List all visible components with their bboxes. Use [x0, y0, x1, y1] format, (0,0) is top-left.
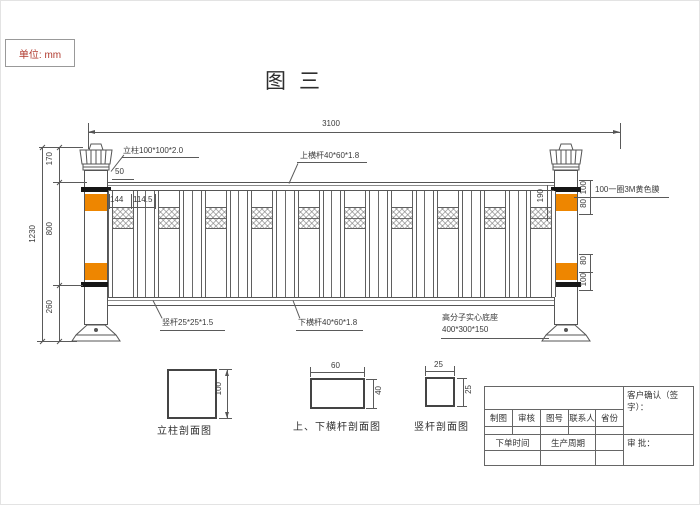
unit-label: 单位: mm: [19, 46, 61, 61]
titleblock-empty-cell: [513, 427, 541, 435]
dim-line: [426, 371, 454, 372]
fence-ornament: [158, 207, 180, 229]
section-rail-dim-side: 40: [375, 386, 383, 395]
approval-cell: 审 批：: [624, 435, 694, 466]
figure-title: 图三: [265, 65, 333, 95]
dim-144: 144: [110, 196, 123, 205]
dim-line: [227, 370, 228, 418]
fence-bar: [424, 191, 425, 297]
fence-ornament: [344, 207, 366, 229]
dim-ext-line: [620, 123, 621, 149]
fence-ornament: [205, 207, 227, 229]
dim-ext-line: [579, 290, 593, 291]
section-vbar-dim-side: 25: [465, 385, 473, 394]
titleblock-empty-cell: [596, 427, 624, 435]
bottom-rail-label: 下横杆40*60*1.8: [298, 319, 357, 328]
dim-arrow: [613, 130, 620, 134]
dim-ext-line: [366, 408, 377, 409]
dim-line: [547, 185, 548, 221]
section-vbar-square: [425, 377, 455, 407]
leader-line: [160, 330, 225, 331]
fence-bar: [471, 191, 472, 297]
fence-bar: [378, 191, 379, 297]
dim-bot-band-80: 80: [580, 256, 588, 265]
dim-ext-line: [219, 418, 232, 419]
dim-ext-line: [131, 194, 132, 209]
fence-ornament: [437, 207, 459, 229]
post-band-black: [81, 282, 111, 287]
dim-line: [88, 132, 620, 133]
section-vbar-label: 竖杆剖面图: [414, 418, 469, 433]
dim-ext-line: [457, 378, 467, 379]
title-block-table: 客户确认（签字）： 制图 审核 图号 联系人 省份 下单时间 生产周期 审 批：: [484, 386, 694, 466]
dim-ext-line: [155, 194, 156, 209]
dim-line: [311, 372, 364, 373]
titleblock-empty-cell: [541, 451, 596, 466]
titleblock-empty-cell: [596, 435, 624, 451]
fence-bar: [331, 191, 332, 297]
dim-cap-height: 170: [46, 152, 54, 165]
dim-line: [42, 147, 43, 341]
customer-confirm-cell: 客户确认（签字）：: [624, 387, 694, 435]
dim-bot-band-100: 100: [580, 273, 588, 286]
dim-ext-line: [454, 366, 455, 376]
dim-ext-line: [457, 406, 467, 407]
header-reviewer: 审核: [513, 410, 541, 427]
titleblock-empty-cell: [541, 427, 569, 435]
header-province: 省份: [596, 410, 624, 427]
base-label-line2: 400*300*150: [442, 326, 488, 335]
post-base-left: [71, 324, 121, 342]
dim-gap-50: 50: [115, 168, 124, 177]
dim-114-5: 114.5: [133, 196, 152, 205]
title-block: 客户确认（签字）： 制图 审核 图号 联系人 省份 下单时间 生产周期 审 批：: [484, 386, 694, 466]
titleblock-empty-cell: [596, 451, 624, 466]
titleblock-empty-cell: [485, 427, 513, 435]
dim-arrow: [225, 412, 229, 418]
dim-ext-line: [39, 147, 83, 148]
dim-arrow: [88, 130, 95, 134]
fence-ornament: [112, 207, 134, 229]
fence-ornament: [484, 207, 506, 229]
dim-line: [59, 147, 60, 341]
dim-top-band-80: 80: [580, 199, 588, 208]
header-drawing-no: 图号: [541, 410, 569, 427]
section-post-label: 立柱剖面图: [157, 422, 212, 437]
dim-arrow: [225, 370, 229, 376]
dim-line: [112, 179, 134, 180]
order-time-cell: 下单时间: [485, 435, 541, 451]
header-contact: 联系人: [569, 410, 596, 427]
dim-ext-line: [364, 367, 365, 377]
unit-box: 单位: mm: [5, 39, 75, 67]
post-label: 立柱100*100*2.0: [123, 147, 183, 156]
dim-ext-line: [579, 214, 593, 215]
fence-bar: [285, 191, 286, 297]
drawing-sheet: 单位: mm 图三 3100: [0, 0, 700, 505]
dim-ext-line: [366, 379, 377, 380]
fence-bar: [238, 191, 239, 297]
production-cycle-cell: 生产周期: [541, 435, 596, 451]
fence-bar: [518, 191, 519, 297]
section-rail-dim-top: 60: [331, 362, 340, 371]
reflective-band: [85, 263, 107, 280]
fence-ornament: [530, 207, 552, 229]
leader-line: [296, 330, 363, 331]
header-drafter: 制图: [485, 410, 513, 427]
section-post-square: [167, 369, 217, 419]
leader-line: [122, 157, 199, 158]
base-label-line1: 高分子实心底座: [442, 314, 498, 323]
dim-line: [109, 207, 156, 208]
vbar-label: 竖杆25*25*1.5: [162, 319, 213, 328]
section-vbar-dim-top: 25: [434, 361, 443, 370]
section-rail-rect: [310, 378, 365, 409]
dim-base-height: 260: [46, 300, 54, 313]
top-rail: [108, 182, 554, 191]
reflective-band: [555, 263, 577, 280]
dim-top-band-100: 100: [580, 181, 588, 194]
titleblock-empty-cell: [569, 427, 596, 435]
section-post-dim: 100: [215, 382, 223, 395]
fence-ornament: [251, 207, 273, 229]
fence-ornament: [391, 207, 413, 229]
post-band-black: [81, 187, 111, 192]
leader-line: [574, 197, 669, 198]
titleblock-empty-cell: [485, 387, 624, 410]
dim-line: [590, 254, 591, 290]
leader-line: [289, 163, 299, 184]
leader-line: [297, 162, 367, 163]
post-base-right: [541, 324, 591, 342]
fence-bar: [192, 191, 193, 297]
post-cap-right: [547, 143, 585, 171]
titleblock-empty-cell: [485, 451, 541, 466]
dim-total-height: 1230: [29, 225, 37, 243]
dim-total-width: 3100: [301, 120, 361, 129]
leader-line: [441, 338, 549, 339]
bottom-rail: [108, 297, 554, 306]
dim-190: 190: [537, 189, 545, 202]
fence-ornament: [298, 207, 320, 229]
reflective-band: [85, 194, 107, 211]
dim-mid-height: 800: [46, 222, 54, 235]
top-rail-label: 上横杆40*60*1.8: [300, 152, 359, 161]
dim-ext-line: [109, 194, 110, 209]
film-label: 100一圈3M黄色膜: [595, 186, 659, 195]
section-rail-label: 上、下横杆剖面图: [293, 418, 381, 433]
